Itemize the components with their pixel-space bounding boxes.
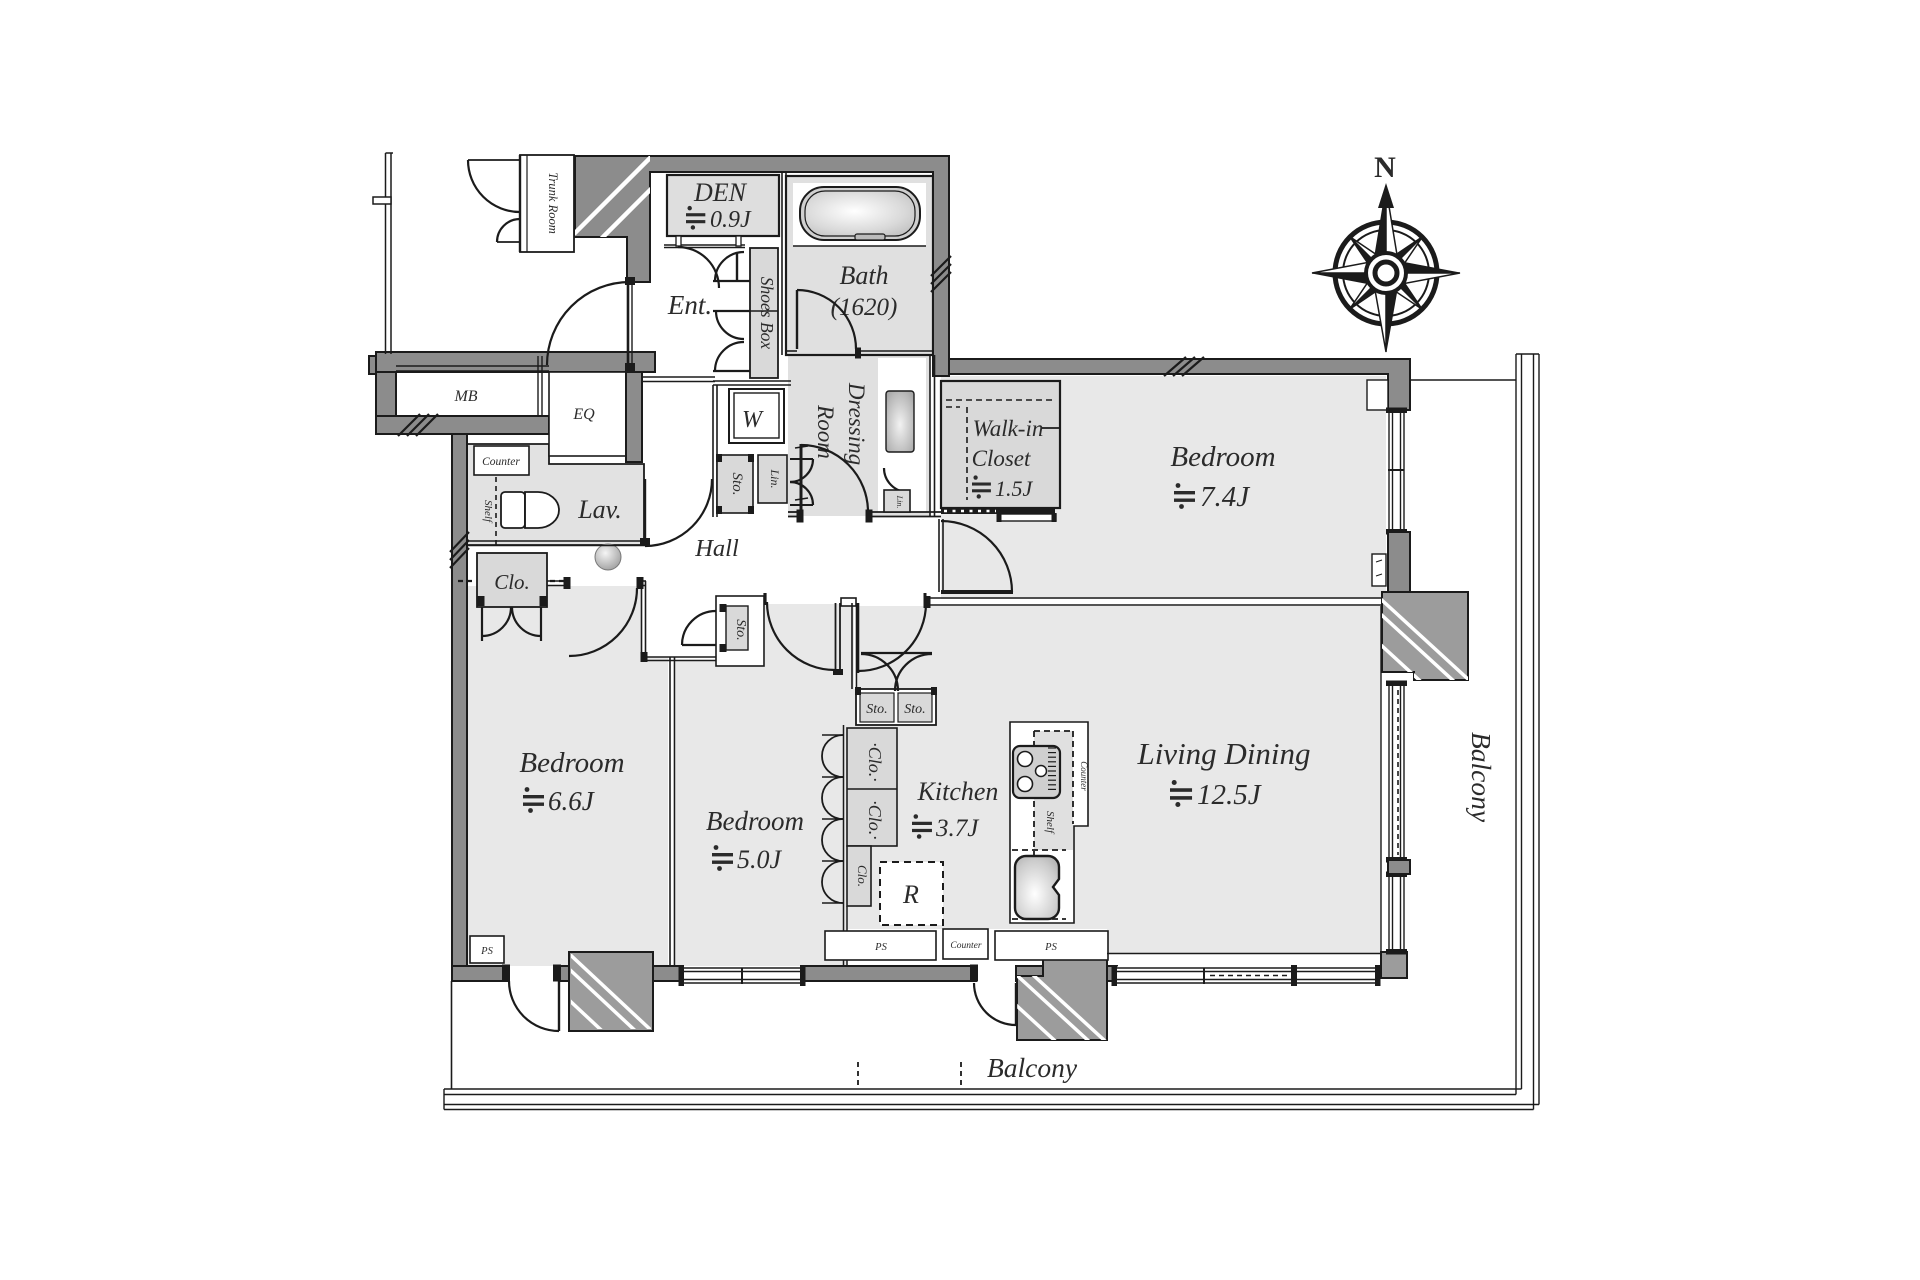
svg-text:Counter: Counter: [482, 456, 520, 468]
svg-text:MB: MB: [453, 388, 477, 405]
svg-text:EQ: EQ: [572, 406, 595, 423]
svg-text:5.0J: 5.0J: [737, 845, 783, 874]
svg-text:6.6J: 6.6J: [548, 786, 596, 816]
svg-text:Trunk Room: Trunk Room: [546, 172, 560, 233]
svg-text:Room: Room: [813, 404, 838, 459]
svg-text:N: N: [1374, 151, 1396, 184]
svg-text:1.5J: 1.5J: [995, 476, 1034, 501]
svg-text:Shelf: Shelf: [1044, 811, 1056, 835]
svg-text:Living Dining: Living Dining: [1136, 736, 1310, 771]
svg-text:Sto.: Sto.: [733, 619, 748, 640]
svg-text:Bath: Bath: [839, 261, 888, 290]
svg-text:0.9J: 0.9J: [710, 207, 752, 233]
svg-text:Closet: Closet: [972, 446, 1031, 471]
svg-text:Sto.: Sto.: [866, 702, 887, 717]
svg-text:W: W: [742, 407, 764, 433]
svg-text:Dressing: Dressing: [844, 382, 869, 465]
svg-text:PS: PS: [874, 942, 887, 953]
svg-text:Lin.: Lin.: [768, 468, 782, 488]
svg-text:Balcony: Balcony: [987, 1052, 1078, 1083]
svg-text:·Clo.·: ·Clo.·: [865, 742, 885, 782]
svg-text:·Clo.·: ·Clo.·: [865, 800, 885, 840]
svg-text:Walk-in: Walk-in: [973, 416, 1044, 441]
svg-text:Balcony: Balcony: [1466, 732, 1497, 823]
svg-text:DEN: DEN: [693, 178, 748, 207]
svg-text:PS: PS: [1044, 942, 1057, 953]
svg-text:Shoes Box: Shoes Box: [757, 277, 777, 350]
svg-text:12.5J: 12.5J: [1197, 779, 1262, 811]
svg-text:Bedroom: Bedroom: [706, 806, 804, 836]
svg-text:Kitchen: Kitchen: [917, 777, 999, 806]
svg-text:3.7J: 3.7J: [935, 815, 980, 842]
svg-text:R: R: [902, 880, 919, 909]
svg-text:Clo.: Clo.: [855, 865, 870, 887]
svg-text:Lin.: Lin.: [895, 495, 904, 509]
svg-text:Sto.: Sto.: [729, 473, 745, 496]
svg-text:PS: PS: [480, 946, 493, 957]
svg-text:(1620): (1620): [831, 294, 898, 321]
svg-text:Lav.: Lav.: [577, 495, 622, 524]
svg-text:Bedroom: Bedroom: [1170, 441, 1275, 473]
svg-text:Ent.: Ent.: [667, 290, 712, 320]
svg-text:7.4J: 7.4J: [1200, 481, 1250, 513]
svg-text:Counter: Counter: [1079, 761, 1089, 791]
svg-text:Bedroom: Bedroom: [519, 747, 624, 779]
svg-text:Clo.: Clo.: [494, 570, 530, 594]
svg-text:Counter: Counter: [950, 941, 981, 951]
svg-text:Sto.: Sto.: [904, 702, 925, 717]
svg-text:Hall: Hall: [694, 535, 739, 562]
svg-text:Shelf: Shelf: [482, 500, 494, 524]
